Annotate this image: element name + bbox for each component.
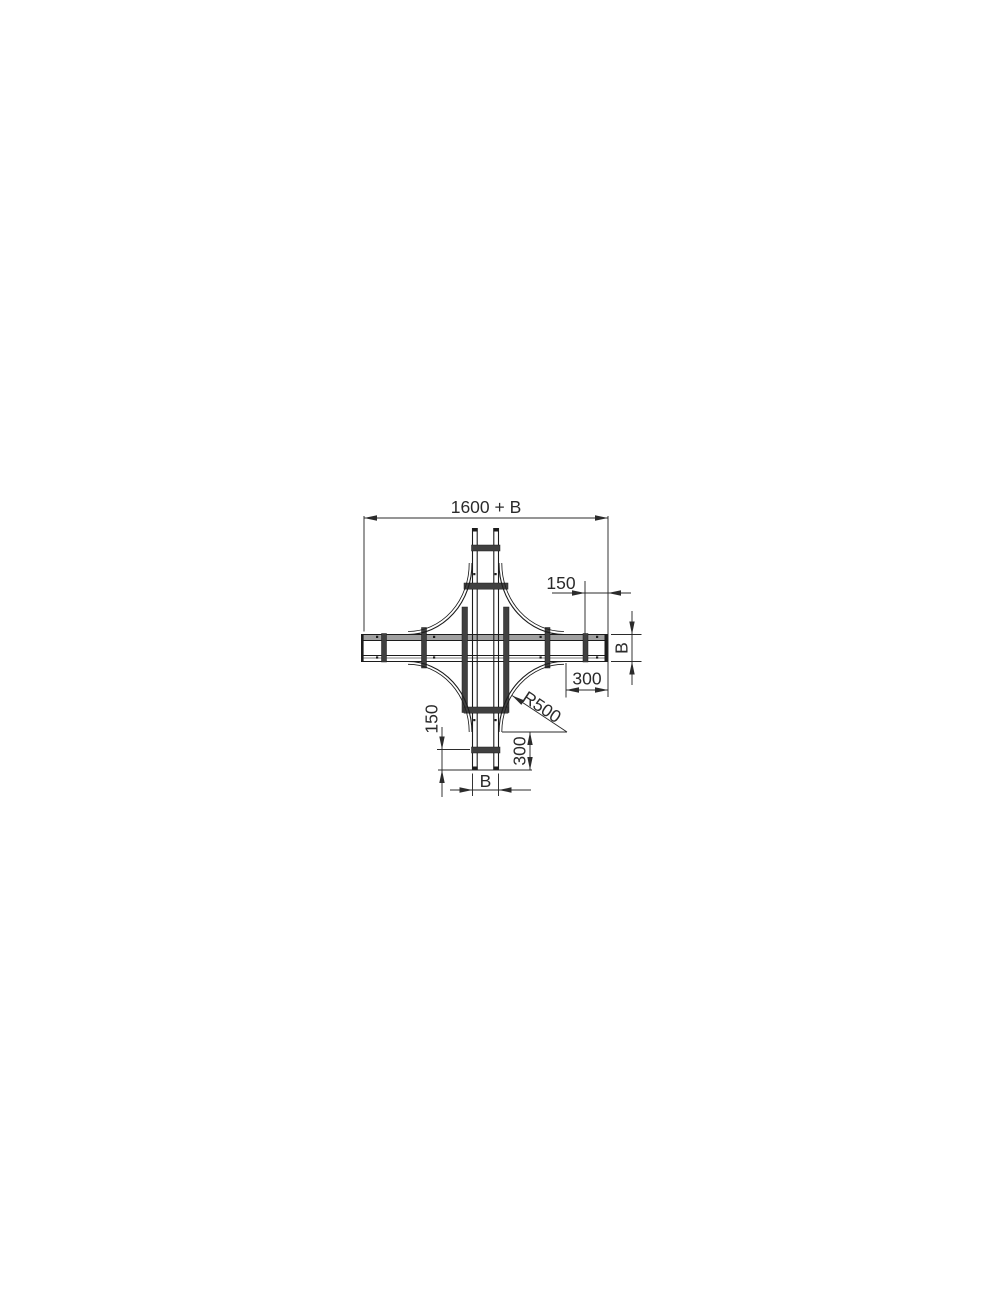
top-left-rail-foot xyxy=(472,528,478,532)
dim-overall-width-label: 1600 + B xyxy=(451,497,522,517)
dim-corner-radius-label: R500 xyxy=(519,687,565,727)
dim-bottom-end-offset-label: 150 xyxy=(422,704,442,733)
arrowhead-top xyxy=(439,737,444,750)
dim-right-straight-label: 300 xyxy=(572,669,601,689)
rung-right-flare xyxy=(545,628,550,669)
arrowhead-right xyxy=(499,787,512,792)
arrowhead-left xyxy=(460,787,473,792)
rung-top-arm xyxy=(472,545,501,551)
top-right-rail-foot xyxy=(493,528,499,532)
arrowhead-top xyxy=(629,622,634,635)
bottom-left-rail-foot xyxy=(472,767,478,771)
arc-top-left-inner xyxy=(408,563,469,632)
arrowhead-right xyxy=(595,515,608,520)
right-end-cap xyxy=(605,635,609,662)
arrowhead-bottom xyxy=(439,770,444,783)
horizontal-arm xyxy=(361,635,608,662)
dim-right-width-label: B xyxy=(612,642,632,654)
rung-right-arm xyxy=(583,634,588,663)
dim-bottom-straight: 300 xyxy=(510,732,533,770)
cross-piece-technical-drawing: 1600 + B 150 B 300 R500 300 xyxy=(0,0,1000,1300)
rung-left-arm xyxy=(382,634,387,663)
arrowhead-left xyxy=(364,515,377,520)
dim-bottom-width: B xyxy=(450,771,531,796)
rivet-dots xyxy=(376,573,598,721)
dim-corner-radius: R500 xyxy=(502,687,567,732)
dim-bottom-straight-label: 300 xyxy=(510,736,530,765)
vertical-arm xyxy=(472,528,499,770)
arrowhead-bottom xyxy=(629,662,634,675)
dim-right-straight: 300 xyxy=(566,663,608,698)
bottom-right-rail-foot xyxy=(493,767,499,771)
arrowhead-right xyxy=(608,590,621,595)
drawing-page: 1600 + B 150 B 300 R500 300 xyxy=(0,0,1000,1300)
rung-bottom-arm xyxy=(472,747,501,753)
rung-left-flare xyxy=(422,628,427,669)
dim-right-end-offset-label: 150 xyxy=(546,573,575,593)
dim-overall-width: 1600 + B xyxy=(364,497,608,697)
dim-right-width: B xyxy=(611,611,642,685)
dim-right-end-offset: 150 xyxy=(546,573,631,634)
dim-bottom-width-label: B xyxy=(480,771,492,791)
left-end-cap xyxy=(361,635,364,662)
top-rail-fill xyxy=(361,635,608,641)
